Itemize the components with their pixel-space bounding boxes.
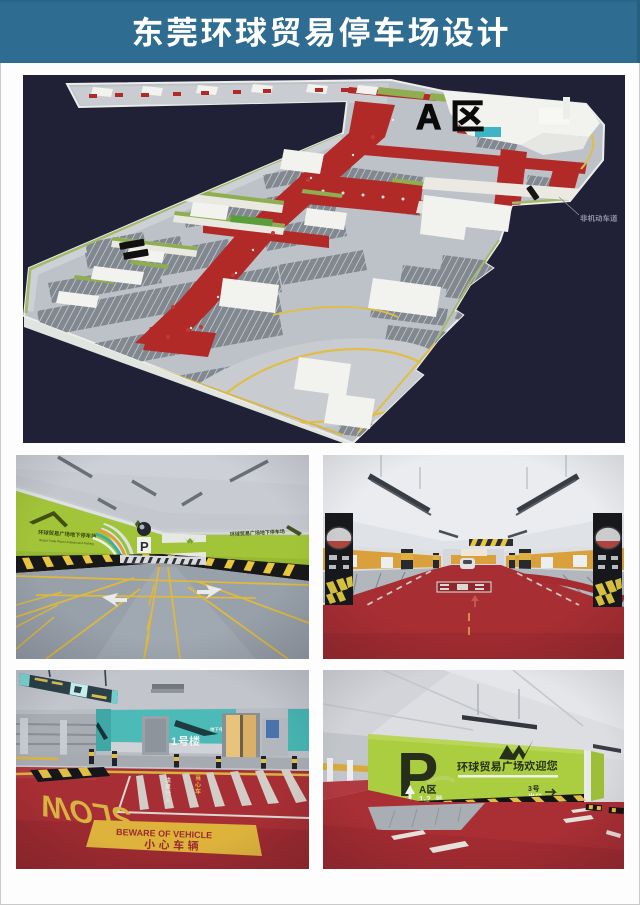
svg-text:A: A bbox=[416, 98, 441, 137]
